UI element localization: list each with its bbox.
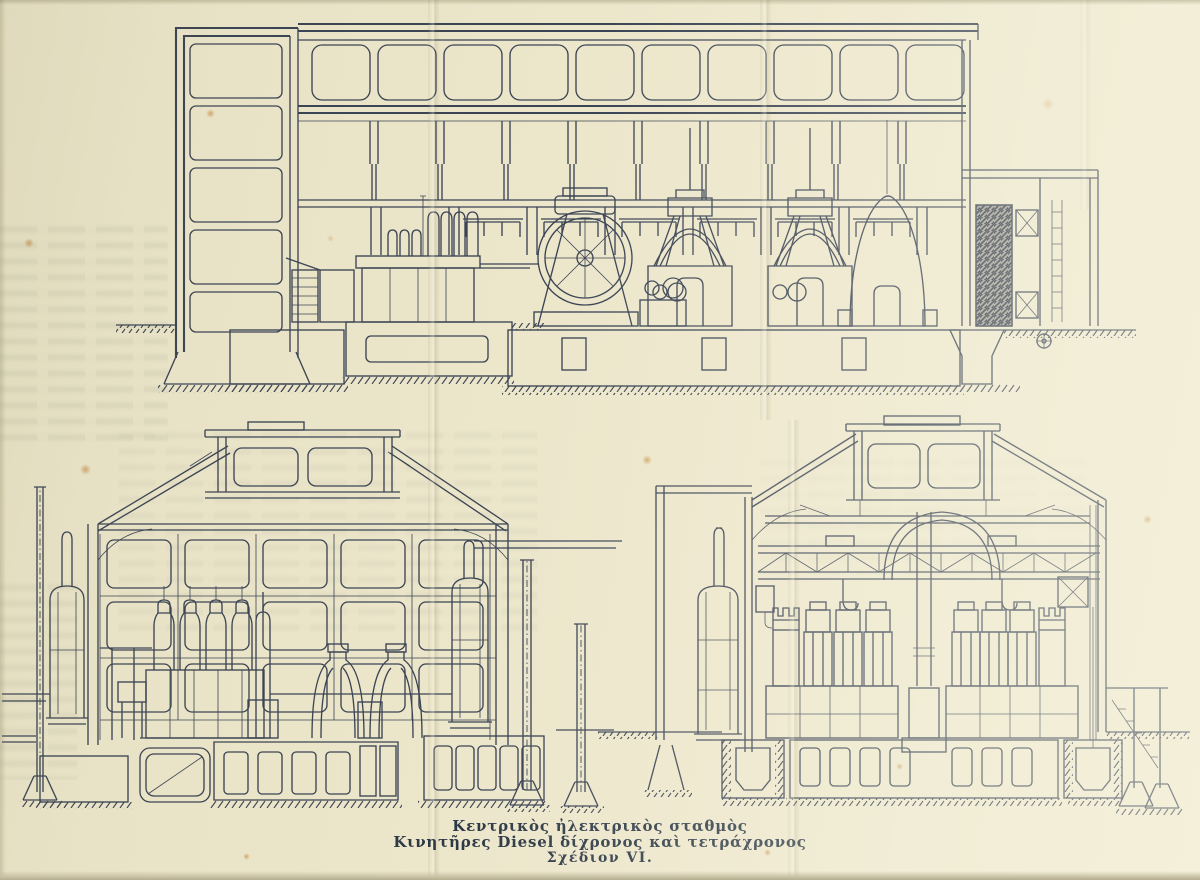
hall-roof-and-windows [298, 24, 978, 121]
caption-line-1: Κεντρικὸς ἠλεκτρικὸς σταθμὸς [0, 818, 1200, 834]
page-edge-top [0, 0, 1200, 5]
scanned-book-plate: Κεντρικὸς ἠλεκτρικὸς σταθμὸς Κινητῆρες D… [0, 0, 1200, 880]
foundations [226, 322, 1136, 395]
exhaust-silencer-left [20, 487, 88, 807]
longitudinal-section-drawing [116, 24, 1136, 395]
caption-line-3: Σχέδιον VI. [0, 850, 1200, 866]
engine-banks [766, 512, 1078, 752]
technical-drawing [0, 0, 1200, 880]
roof-and-monitor [752, 416, 1106, 580]
cross-section-right-drawing [598, 416, 1190, 815]
right-wall-and-stairs [1090, 500, 1190, 815]
foundation-right [722, 607, 1122, 806]
page-edge-left [0, 0, 6, 880]
overhead-crane [758, 536, 1100, 610]
figure-caption: Κεντρικὸς ἠλεκτρικὸς σταθμὸς Κινητῆρες D… [0, 818, 1200, 866]
exhaust-silencer-right [448, 541, 622, 728]
switchboard-annex [962, 170, 1098, 326]
tower-structure [116, 28, 316, 393]
cross-section-left-drawing [2, 422, 622, 813]
page-edge-bottom [0, 871, 1200, 880]
left-annex-and-silencer [598, 486, 774, 797]
auxiliary-bench-and-bottles [286, 196, 538, 322]
generator-flywheel [534, 188, 686, 326]
engine-cylinders [100, 586, 452, 740]
caption-line-2: Κινητῆρες Diesel δίχρονος καὶ τετράχρονο… [0, 834, 1200, 850]
air-dome [838, 120, 937, 326]
building-shell [88, 422, 508, 745]
